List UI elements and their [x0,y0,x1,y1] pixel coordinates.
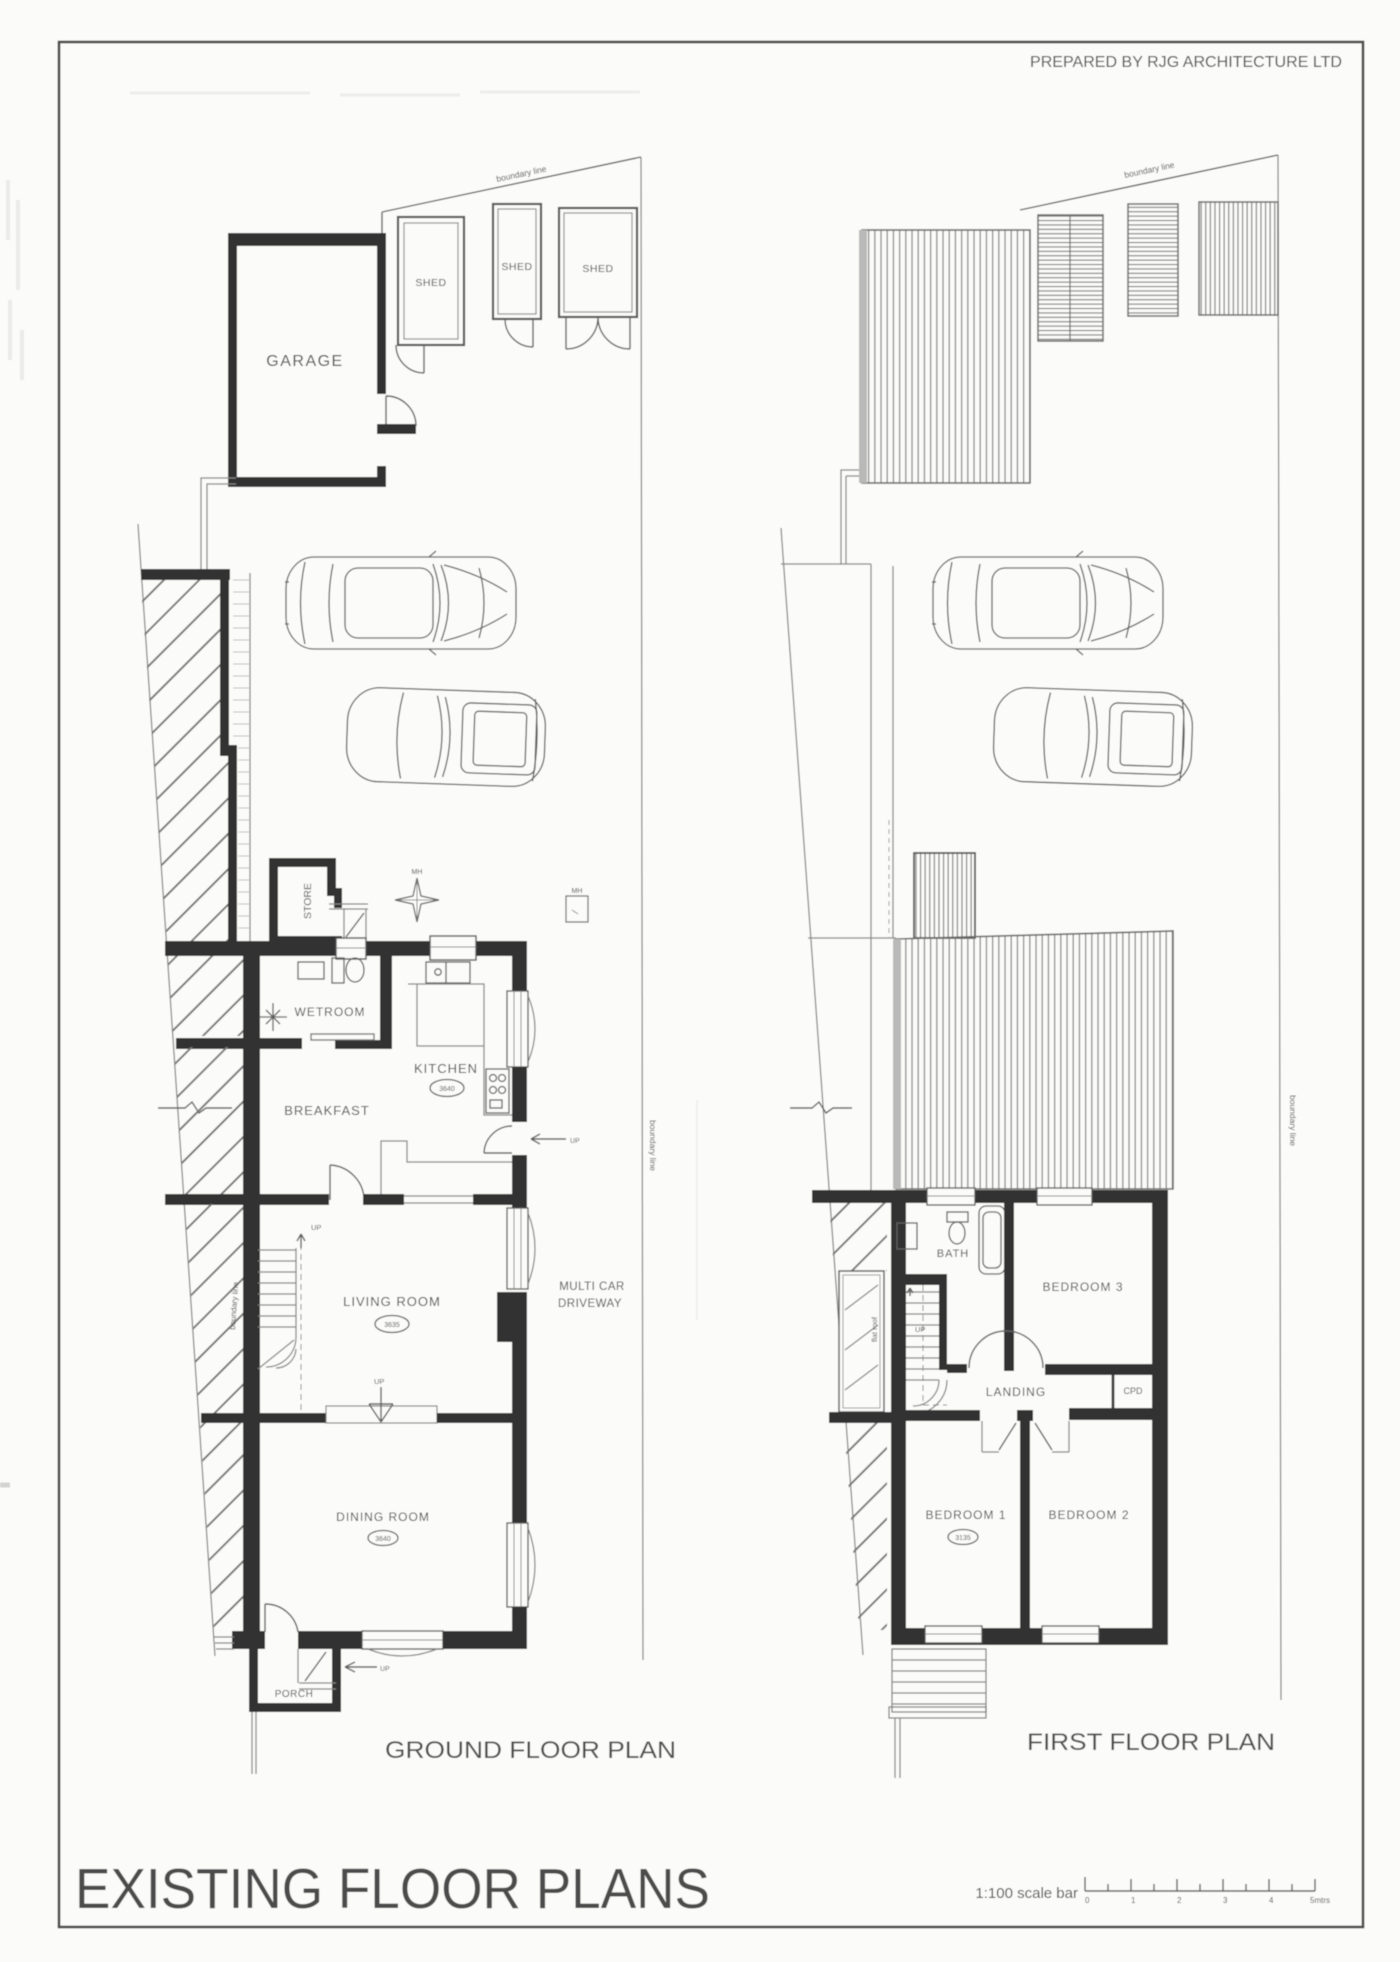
svg-text:FIRST FLOOR PLAN: FIRST FLOOR PLAN [1027,1729,1275,1756]
svg-text:boundary line: boundary line [1288,1095,1298,1146]
svg-text:3: 3 [1223,1896,1228,1905]
svg-text:EXISTING FLOOR PLANS: EXISTING FLOOR PLANS [75,1857,710,1921]
svg-text:GROUND FLOOR PLAN: GROUND FLOOR PLAN [385,1737,676,1764]
svg-text:2: 2 [1177,1896,1182,1905]
svg-text:WETROOM: WETROOM [295,1005,366,1019]
svg-text:BEDROOM 2: BEDROOM 2 [1048,1508,1129,1522]
svg-text:UP: UP [915,1325,925,1334]
svg-text:SHED: SHED [501,261,532,273]
svg-text:BEDROOM 1: BEDROOM 1 [925,1508,1006,1522]
svg-text:KITCHEN: KITCHEN [414,1061,478,1076]
svg-text:SHED: SHED [415,277,446,289]
svg-text:LANDING: LANDING [986,1385,1046,1399]
svg-text:1: 1 [1131,1896,1136,1905]
svg-text:5mtrs: 5mtrs [1310,1896,1330,1905]
svg-text:UP: UP [374,1377,384,1386]
svg-text:STORE: STORE [302,883,314,919]
svg-text:3135: 3135 [955,1535,971,1542]
svg-text:SHED: SHED [582,263,613,275]
svg-text:LIVING ROOM: LIVING ROOM [343,1294,441,1309]
svg-text:flat roof: flat roof [870,1316,879,1342]
svg-text:3640: 3640 [439,1086,455,1093]
svg-text:3635: 3635 [384,1322,400,1329]
svg-text:BREAKFAST: BREAKFAST [284,1103,370,1118]
svg-text:BEDROOM 3: BEDROOM 3 [1042,1280,1123,1294]
svg-text:MULTI CAR: MULTI CAR [559,1281,625,1293]
svg-text:DRIVEWAY: DRIVEWAY [558,1298,622,1310]
svg-text:boundary line: boundary line [648,1120,658,1171]
svg-text:4: 4 [1269,1896,1274,1905]
svg-text:MH: MH [572,888,583,895]
svg-text:PORCH: PORCH [275,1689,314,1700]
svg-text:DINING ROOM: DINING ROOM [336,1510,430,1524]
svg-text:1:100 scale bar: 1:100 scale bar [975,1885,1078,1902]
svg-text:PREPARED BY RJG ARCHITECTURE L: PREPARED BY RJG ARCHITECTURE LTD [1030,54,1342,71]
svg-text:UP: UP [380,1666,390,1673]
svg-text:BATH: BATH [937,1248,970,1260]
svg-text:0: 0 [1085,1896,1090,1905]
svg-text:UP: UP [311,1223,321,1232]
svg-text:UP: UP [570,1138,580,1145]
svg-text:MH: MH [412,869,423,876]
svg-text:3640: 3640 [375,1536,391,1543]
svg-text:CPD: CPD [1123,1386,1143,1396]
svg-text:GARAGE: GARAGE [266,353,343,370]
